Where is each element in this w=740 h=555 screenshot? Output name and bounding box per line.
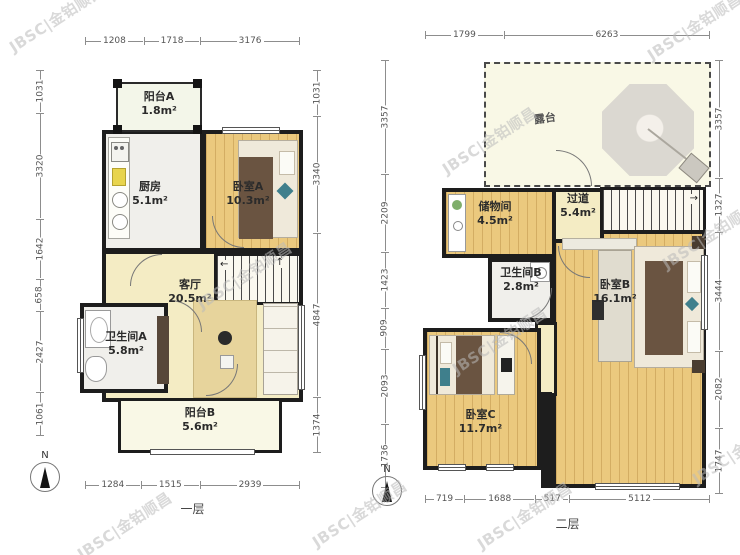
stair-arrow-icon: ↑ [275,258,285,268]
room-label-storage: 储物间 4.5m² [455,200,535,229]
nightstand-icon [692,360,705,373]
dimension-segment: 1061 [33,392,47,436]
window-icon [438,464,466,471]
bed-icon [634,246,704,368]
room-name-label: 储物间 [455,200,535,214]
staircase-icon: → [600,187,706,233]
room-label-balcony-a: 阳台A 1.8m² [116,90,202,119]
dimension-segment: 3357 [712,60,726,178]
room-label-kitchen: 厨房 5.1m² [106,180,194,209]
room-area-label: 5.1m² [106,194,194,208]
dimension-segment: 1208 [85,34,144,48]
north-compass-icon [372,476,402,506]
window-icon [150,449,255,455]
dimension-segment: 1515 [141,478,200,492]
north-label: N [30,450,60,461]
dimension-segment: 3444 [712,232,726,350]
stair-arrow-icon: ← [219,260,229,270]
room-area-label: 4.5m² [455,214,535,228]
window-icon [595,483,680,490]
floor1-right-dimensions: 1031334048471374 [310,70,324,453]
room-area-label: 10.3m² [203,194,293,208]
dimension-segment: 719 [425,492,464,506]
room-name-label: 卫生间A [84,330,168,344]
window-icon [298,305,305,390]
room-label-corridor: 过道 5.4m² [548,192,608,221]
nightstand-icon [692,236,705,249]
window-icon [77,318,84,373]
room-name-label: 卫生间B [486,266,556,280]
dimension-segment: 2209 [378,174,392,252]
dimension-segment: 1747 [712,428,726,494]
room-name-label: 过道 [548,192,608,206]
room-name-label: 阳台B [150,406,250,420]
dimension-segment: 3340 [310,116,324,233]
floor2-top-dimensions: 17996263 [425,28,710,42]
north-arrow: N [30,450,60,492]
room-name-label: 厨房 [106,180,194,194]
dimension-segment: 5112 [569,492,710,506]
window-icon [419,355,426,410]
bed-icon [429,335,495,395]
dimension-segment: 1031 [33,70,47,113]
dimension-segment: 3320 [33,113,47,219]
dimension-segment: 6263 [504,28,710,42]
floor2-left-dimensions: 33572209142390920931736 [378,60,392,488]
dimension-segment: 909 [378,308,392,349]
floor2-label: 二层 [425,515,710,532]
wall-post [193,125,202,134]
room-label-living: 客厅 20.5m² [145,278,235,307]
dimension-segment: 3357 [378,60,392,174]
floor1-bottom-dimensions: 128415152939 [85,478,300,492]
room-area-label: 2.8m² [486,280,556,294]
wall-post [193,79,202,88]
watermark-text: JBSC|金铂顺昌 [73,487,176,555]
dimension-segment: 1284 [85,478,141,492]
dimension-segment: 1688 [464,492,535,506]
dimension-segment: 1799 [425,28,504,42]
north-arrow: N [372,464,402,506]
floor2-right-dimensions: 33571327344420821747 [712,60,726,494]
dimension-segment: 517 [535,492,569,506]
room-label-bathroom-b: 卫生间B 2.8m² [486,266,556,295]
floor1-label: 一层 [85,500,300,517]
dimension-segment: 1031 [310,70,324,116]
room-name-label: 卧室C [428,408,533,422]
room-area-label: 11.7m² [428,422,533,436]
dimension-segment: 4847 [310,233,324,397]
dimension-segment: 1718 [144,34,200,48]
sofa-icon [263,303,298,395]
north-label: N [372,464,402,475]
dimension-segment: 2427 [33,311,47,392]
dimension-segment: 1423 [378,252,392,307]
floor2-bottom-dimensions: 71916885175112 [425,492,710,506]
room-name-label: 阳台A [116,90,202,104]
north-compass-icon [30,462,60,492]
dimension-segment: 1642 [33,219,47,279]
room-label-bathroom-a: 卫生间A 5.8m² [84,330,168,359]
window-icon [486,464,514,471]
room-name-label: 卧室A [203,180,293,194]
stair-arrow-icon: → [689,194,699,204]
room-area-label: 5.8m² [84,344,168,358]
floor1-top-dimensions: 120817183176 [85,34,300,48]
wall-post [113,79,122,88]
room-area-label: 5.6m² [150,420,250,434]
room-label-bedroom-c: 卧室C 11.7m² [428,408,533,437]
floor1-left-dimensions: 10313320164265824271061 [33,70,47,436]
dimension-segment: 658 [33,279,47,311]
room-label-bedroom-b: 卧室B 16.1m² [565,278,665,307]
floorplan-canvas: JBSC|金铂顺昌 JBSC|金铂顺昌 JBSC|金铂顺昌 JBSC|金铂顺昌 … [0,0,740,555]
dimension-segment: 2082 [712,351,726,428]
dimension-segment: 2093 [378,349,392,424]
wall-segment [541,392,552,488]
room-label-bedroom-a: 卧室A 10.3m² [203,180,293,209]
room-area-label: 16.1m² [565,292,665,306]
room-area-label: 5.4m² [548,206,608,220]
room-area-label: 1.8m² [116,104,202,118]
toilet-icon [85,356,107,382]
window-icon [701,255,708,330]
room-name-label: 客厅 [145,278,235,292]
dimension-segment: 2939 [200,478,300,492]
window-icon [222,127,280,134]
room-area-label: 20.5m² [145,292,235,306]
wall-post [113,125,122,134]
dimension-segment: 3176 [200,34,300,48]
dimension-segment: 1374 [310,397,324,453]
room-name-label: 卧室B [565,278,665,292]
dimension-segment: 1327 [712,178,726,232]
room-label-balcony-b: 阳台B 5.6m² [150,406,250,435]
watermark-text: JBSC|金铂顺昌 [5,0,108,57]
